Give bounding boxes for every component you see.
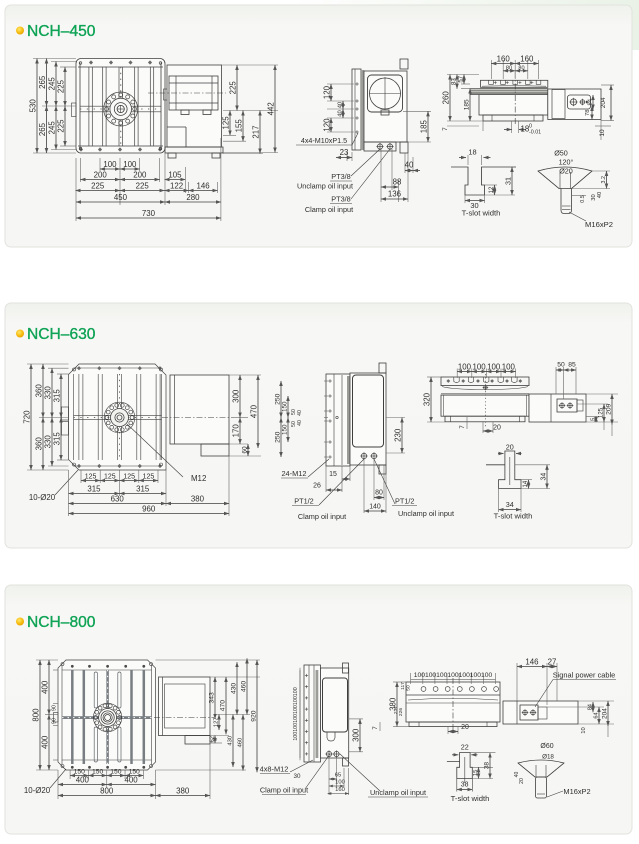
svg-text:136: 136: [388, 190, 402, 199]
svg-text:20: 20: [506, 443, 514, 452]
svg-text:117: 117: [400, 682, 406, 690]
svg-text:34: 34: [541, 473, 548, 481]
svg-text:200: 200: [94, 171, 108, 180]
svg-text:150: 150: [282, 424, 289, 435]
svg-text:150: 150: [74, 769, 85, 776]
svg-text:PT3/8: PT3/8: [331, 172, 350, 181]
svg-text:NCH–800: NCH–800: [27, 614, 96, 631]
svg-text:170: 170: [232, 424, 241, 438]
svg-text:250: 250: [275, 431, 282, 442]
svg-text:200: 200: [133, 171, 147, 180]
svg-text:225: 225: [91, 182, 105, 191]
svg-text:15: 15: [329, 471, 337, 478]
svg-text:160: 160: [497, 55, 511, 64]
svg-text:Ø18: Ø18: [542, 754, 554, 761]
svg-text:Signal power cable: Signal power cable: [553, 671, 616, 680]
svg-text:14: 14: [523, 480, 529, 487]
svg-text:225: 225: [57, 119, 66, 133]
svg-text:150: 150: [282, 401, 289, 412]
svg-text:0.5: 0.5: [580, 195, 586, 202]
svg-text:Unclamp oil input: Unclamp oil input: [398, 509, 454, 518]
svg-text:M16xP2: M16xP2: [585, 220, 613, 229]
svg-text:40: 40: [297, 420, 303, 426]
svg-text:50: 50: [557, 362, 565, 369]
svg-text:26: 26: [313, 483, 321, 490]
svg-text:140: 140: [369, 504, 381, 511]
svg-text:120: 120: [323, 85, 332, 99]
svg-text:62: 62: [210, 736, 216, 742]
svg-text:7: 7: [442, 127, 449, 131]
svg-text:127: 127: [214, 717, 220, 727]
svg-text:10-Ø20: 10-Ø20: [29, 493, 56, 502]
svg-text:7: 7: [459, 425, 466, 429]
svg-text:730: 730: [142, 209, 156, 218]
svg-text:20: 20: [519, 778, 525, 784]
svg-text:265: 265: [38, 75, 47, 89]
svg-text:10: 10: [599, 129, 606, 137]
svg-text:34: 34: [506, 500, 514, 509]
svg-text:T-slot width: T-slot width: [494, 512, 533, 521]
svg-text:80: 80: [375, 490, 383, 497]
svg-text:300: 300: [232, 389, 241, 403]
svg-text:100100100100100100: 100100100100100100: [293, 687, 299, 740]
svg-text:125: 125: [599, 407, 605, 418]
svg-text:442: 442: [267, 102, 276, 115]
svg-text:15: 15: [473, 770, 479, 776]
svg-text:380: 380: [176, 787, 190, 796]
svg-text:Unclamp oil input: Unclamp oil input: [297, 182, 353, 191]
svg-text:3.2: 3.2: [601, 176, 607, 183]
svg-text:84: 84: [588, 98, 594, 105]
svg-text:430: 430: [228, 736, 234, 746]
svg-text:225: 225: [229, 81, 238, 95]
svg-text:360: 360: [35, 437, 44, 451]
svg-text:380: 380: [191, 495, 205, 504]
svg-text:5: 5: [591, 418, 597, 421]
svg-text:100: 100: [473, 363, 487, 372]
svg-text:40: 40: [338, 102, 344, 108]
svg-text:88: 88: [393, 178, 402, 187]
svg-text:PT1/2: PT1/2: [294, 497, 313, 506]
svg-text:450: 450: [114, 193, 128, 202]
svg-text:85: 85: [568, 362, 576, 369]
svg-text:125: 125: [143, 474, 155, 481]
svg-text:40: 40: [338, 110, 344, 116]
svg-text:T-slot width: T-slot width: [451, 794, 490, 803]
svg-text:57: 57: [459, 75, 465, 82]
svg-text:120: 120: [323, 118, 332, 132]
svg-text:150: 150: [110, 769, 121, 776]
svg-text:M12: M12: [191, 474, 206, 483]
svg-text:720: 720: [23, 410, 32, 424]
svg-text:78: 78: [585, 110, 591, 116]
svg-text:4x8-M12: 4x8-M12: [260, 765, 289, 774]
svg-text:470: 470: [250, 404, 259, 418]
svg-text:960: 960: [142, 505, 156, 514]
svg-text:27: 27: [548, 658, 557, 667]
svg-text:204: 204: [602, 708, 609, 719]
svg-text:470: 470: [220, 700, 227, 711]
svg-text:65: 65: [335, 773, 341, 779]
svg-text:10-Ø20: 10-Ø20: [24, 786, 51, 795]
svg-text:460: 460: [241, 681, 248, 692]
svg-text:Ø50: Ø50: [554, 149, 568, 158]
svg-text:120°: 120°: [559, 158, 574, 167]
svg-text:125: 125: [104, 474, 116, 481]
svg-text:100: 100: [103, 160, 117, 169]
svg-text:155: 155: [235, 119, 244, 133]
svg-text:84: 84: [588, 704, 594, 710]
svg-text:100: 100: [487, 363, 501, 372]
svg-text:430: 430: [231, 683, 238, 694]
svg-text:209: 209: [606, 403, 613, 414]
svg-text:150: 150: [129, 769, 140, 776]
svg-text:10: 10: [581, 727, 587, 733]
svg-text:105: 105: [168, 171, 182, 180]
svg-text:280: 280: [186, 193, 200, 202]
svg-text:PT3/8: PT3/8: [331, 195, 350, 204]
svg-text:400: 400: [76, 776, 90, 785]
svg-text:83: 83: [452, 78, 458, 85]
svg-text:320: 320: [423, 392, 432, 406]
svg-text:NCH–450: NCH–450: [27, 23, 96, 40]
svg-text:146: 146: [525, 658, 539, 667]
svg-text:330: 330: [44, 435, 53, 449]
svg-text:22: 22: [461, 743, 469, 752]
svg-text:146: 146: [196, 182, 210, 191]
svg-text:PT1/2: PT1/2: [395, 497, 414, 506]
svg-text:20: 20: [461, 724, 469, 731]
svg-text:24-M12: 24-M12: [281, 469, 306, 478]
svg-text:90: 90: [52, 705, 58, 711]
svg-text:315: 315: [53, 389, 62, 403]
svg-text:800: 800: [100, 787, 114, 796]
svg-text:530: 530: [29, 99, 38, 113]
svg-text:100: 100: [458, 363, 472, 372]
svg-text:300: 300: [352, 728, 361, 742]
svg-text:460: 460: [238, 738, 244, 748]
svg-text:400: 400: [41, 735, 50, 749]
svg-text:185: 185: [420, 119, 429, 133]
svg-text:230: 230: [394, 428, 403, 442]
svg-text:20: 20: [493, 425, 501, 432]
svg-text:185: 185: [464, 99, 471, 110]
svg-text:160: 160: [520, 55, 534, 64]
svg-text:245: 245: [48, 121, 57, 135]
svg-text:Unclamp oil input: Unclamp oil input: [370, 788, 426, 797]
svg-text:40: 40: [297, 410, 303, 416]
svg-text:125: 125: [85, 474, 97, 481]
svg-text:40: 40: [405, 161, 414, 170]
svg-text:12: 12: [489, 186, 495, 193]
svg-text:Clamp oil input: Clamp oil input: [298, 512, 346, 521]
svg-text:343: 343: [209, 692, 216, 703]
svg-text:315: 315: [53, 432, 62, 446]
svg-text:630: 630: [111, 495, 125, 504]
svg-text:315: 315: [87, 485, 101, 494]
svg-text:38: 38: [461, 782, 469, 789]
svg-text:125: 125: [222, 116, 231, 130]
svg-text:80: 80: [518, 65, 524, 71]
svg-text:50: 50: [406, 685, 412, 691]
svg-text:23: 23: [340, 148, 349, 157]
svg-text:315: 315: [136, 485, 150, 494]
svg-text:40: 40: [597, 192, 603, 198]
svg-text:225: 225: [136, 182, 150, 191]
svg-text:920: 920: [251, 710, 258, 721]
svg-text:100: 100: [123, 160, 137, 169]
svg-text:40: 40: [514, 772, 520, 778]
svg-text:NCH–630: NCH–630: [27, 326, 96, 343]
svg-text:204: 204: [600, 97, 607, 108]
svg-text:-0.01: -0.01: [529, 130, 541, 136]
svg-text:100100100100100100100: 100100100100100100100: [414, 672, 493, 679]
svg-text:Clamp oil input: Clamp oil input: [305, 205, 353, 214]
svg-text:30: 30: [591, 194, 597, 200]
svg-text:100: 100: [335, 780, 345, 786]
svg-text:400: 400: [125, 776, 139, 785]
svg-text:225: 225: [57, 79, 66, 93]
svg-text:265: 265: [38, 122, 47, 136]
svg-text:38: 38: [484, 762, 491, 770]
svg-text:226: 226: [398, 708, 404, 716]
svg-text:260: 260: [442, 91, 451, 105]
svg-text:T-slot width: T-slot width: [462, 209, 501, 218]
svg-text:64: 64: [594, 712, 600, 718]
svg-text:M16xP2: M16xP2: [563, 787, 590, 796]
svg-text:4x4-M10xP1.5: 4x4-M10xP1.5: [301, 136, 347, 145]
svg-text:31: 31: [504, 177, 513, 185]
svg-text:30: 30: [294, 773, 301, 780]
svg-text:122: 122: [170, 182, 183, 191]
svg-text:800: 800: [32, 708, 41, 722]
svg-text:Clamp oil input: Clamp oil input: [260, 786, 308, 795]
svg-text:100: 100: [502, 363, 516, 372]
svg-text:125: 125: [123, 474, 135, 481]
svg-text:7: 7: [372, 726, 379, 730]
svg-text:217: 217: [252, 125, 261, 138]
svg-text:Ø60: Ø60: [540, 743, 553, 750]
svg-text:150: 150: [92, 769, 103, 776]
svg-text:400: 400: [41, 680, 50, 694]
svg-text:90: 90: [52, 718, 58, 724]
svg-text:60: 60: [242, 446, 249, 454]
svg-text:250: 250: [275, 393, 282, 404]
svg-text:360: 360: [35, 384, 44, 398]
svg-text:80: 80: [506, 65, 512, 71]
svg-text:160: 160: [335, 787, 345, 793]
svg-text:330: 330: [44, 386, 53, 400]
svg-text:245: 245: [48, 77, 57, 91]
svg-text:18: 18: [468, 148, 476, 157]
